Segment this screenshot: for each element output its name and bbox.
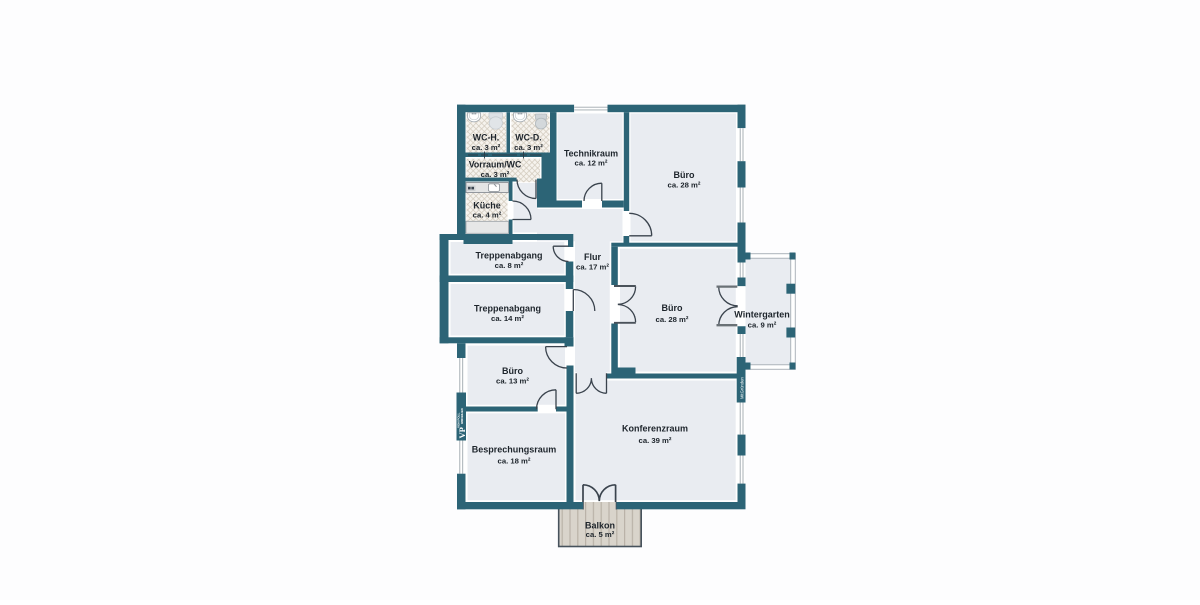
svg-text:ca. 9 m²: ca. 9 m² bbox=[748, 321, 777, 330]
svg-text:ca. 28 m²: ca. 28 m² bbox=[668, 180, 701, 189]
svg-text:Küche: Küche bbox=[473, 200, 501, 210]
svg-text:VON POLL: VON POLL bbox=[457, 412, 461, 428]
svg-text:Vorraum/WC: Vorraum/WC bbox=[469, 160, 522, 170]
svg-text:Flur: Flur bbox=[584, 252, 601, 262]
svg-text:Büro: Büro bbox=[674, 170, 695, 180]
svg-text:Büro: Büro bbox=[662, 303, 683, 313]
svg-text:ca. 17 m²: ca. 17 m² bbox=[576, 263, 609, 272]
svg-text:ca. 14 m²: ca. 14 m² bbox=[491, 314, 524, 323]
svg-text:ca. 8 m²: ca. 8 m² bbox=[495, 261, 524, 270]
svg-text:ca. 3 m²: ca. 3 m² bbox=[514, 143, 543, 152]
svg-text:ca. 3 m²: ca. 3 m² bbox=[481, 170, 510, 179]
svg-text:MitGründen: MitGründen bbox=[740, 376, 745, 399]
svg-text:Treppenabgang: Treppenabgang bbox=[474, 304, 541, 314]
svg-text:ca. 13 m²: ca. 13 m² bbox=[496, 377, 529, 386]
svg-text:ca. 12 m²: ca. 12 m² bbox=[575, 158, 608, 167]
svg-text:WC-H.: WC-H. bbox=[473, 133, 499, 143]
svg-text:Wintergarten: Wintergarten bbox=[734, 310, 789, 320]
svg-text:ca. 28 m²: ca. 28 m² bbox=[656, 315, 689, 324]
svg-text:Konferenzraum: Konferenzraum bbox=[622, 424, 688, 434]
svg-text:WC-D.: WC-D. bbox=[515, 133, 541, 143]
svg-text:Technikraum: Technikraum bbox=[564, 148, 618, 158]
svg-text:ca. 3 m²: ca. 3 m² bbox=[472, 143, 501, 152]
svg-text:ca. 4 m²: ca. 4 m² bbox=[473, 211, 502, 220]
svg-text:Besprechungsraum: Besprechungsraum bbox=[472, 445, 557, 455]
svg-text:IMMOBILIEN: IMMOBILIEN bbox=[460, 408, 464, 424]
svg-text:Büro: Büro bbox=[502, 366, 523, 376]
svg-text:ca. 18 m²: ca. 18 m² bbox=[498, 457, 531, 466]
svg-text:ca. 5 m²: ca. 5 m² bbox=[586, 530, 615, 539]
svg-text:Treppenabgang: Treppenabgang bbox=[475, 250, 542, 260]
svg-text:ca. 39 m²: ca. 39 m² bbox=[639, 436, 672, 445]
